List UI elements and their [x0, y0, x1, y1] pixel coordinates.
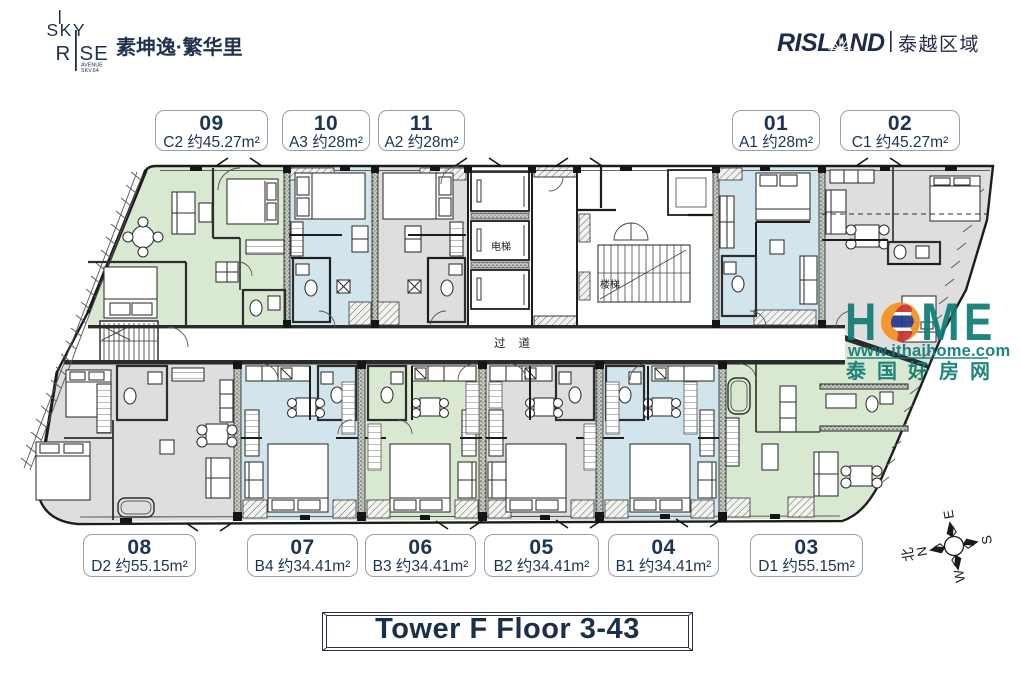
- svg-text:楼梯: 楼梯: [600, 278, 620, 291]
- svg-text:S: S: [979, 534, 995, 545]
- svg-text:W: W: [951, 568, 968, 583]
- svg-text:过道: 过道: [494, 336, 543, 350]
- svg-text:E: E: [941, 509, 957, 520]
- svg-text:泰国好房网: 泰国好房网: [845, 359, 1001, 383]
- svg-text:N: N: [914, 545, 930, 557]
- svg-text:电梯: 电梯: [491, 240, 511, 253]
- svg-text:北: 北: [899, 546, 917, 563]
